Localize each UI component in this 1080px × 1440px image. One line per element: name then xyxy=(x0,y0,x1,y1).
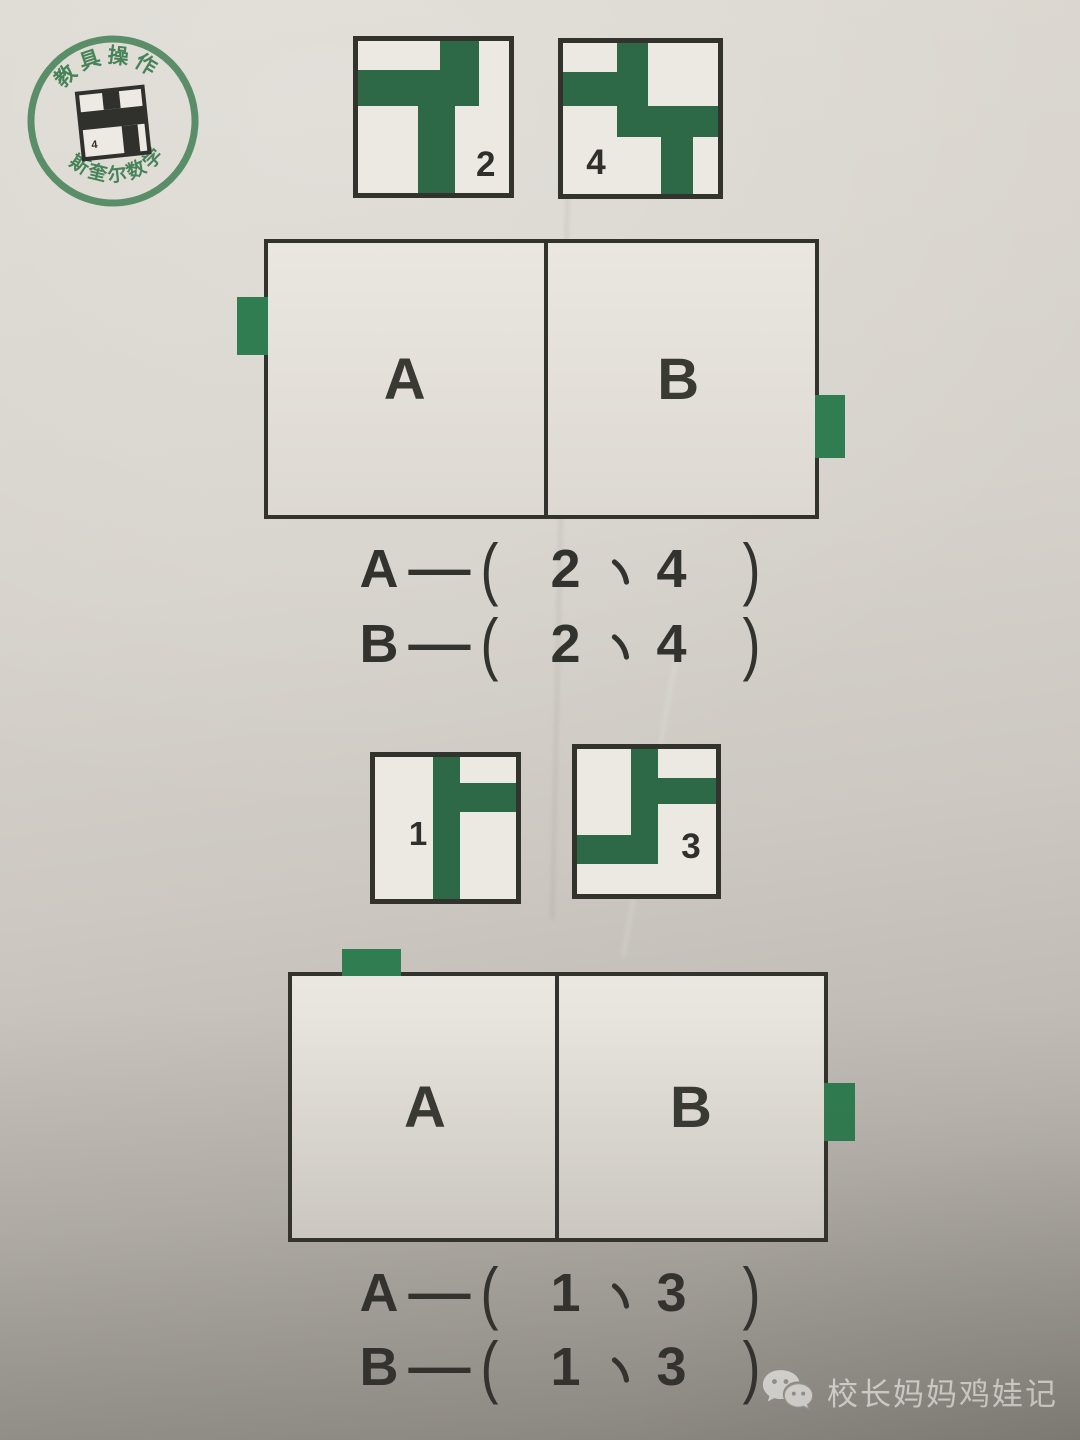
domino-board-1: A B xyxy=(264,239,819,519)
card-number: 4 xyxy=(586,145,605,180)
open-paren: ( xyxy=(480,1327,498,1406)
answer-label: B xyxy=(359,613,398,675)
answer-dash: — xyxy=(408,613,470,675)
wechat-icon xyxy=(759,1368,815,1414)
answer-label: A xyxy=(359,1262,398,1324)
green-pattern-rect xyxy=(648,106,718,136)
green-pattern-rect xyxy=(358,70,440,106)
close-paren: ) xyxy=(743,1327,761,1406)
green-tab-left xyxy=(237,297,268,354)
card-number: 1 xyxy=(409,817,427,850)
answer-dash: — xyxy=(408,1336,470,1398)
green-pattern-rect xyxy=(433,757,460,899)
domino-cell-b: B xyxy=(542,243,816,515)
green-pattern-rect xyxy=(418,106,454,193)
ideographic-comma-icon xyxy=(611,1357,631,1383)
green-tab-right xyxy=(824,1083,855,1141)
answer-line-a1: A — ( 2 4 ) xyxy=(359,538,760,600)
answer-number-1: 2 xyxy=(550,538,580,600)
answer-number-2: 3 xyxy=(657,1336,687,1398)
green-pattern-rect xyxy=(658,778,716,804)
answer-line-a2: A — ( 1 3 ) xyxy=(359,1262,760,1324)
watermark-text: 校长妈妈鸡娃记 xyxy=(827,1369,1058,1414)
answer-number-1: 1 xyxy=(550,1262,580,1324)
answer-line-b2: B — ( 1 3 ) xyxy=(359,1336,760,1398)
close-paren: ) xyxy=(743,1253,761,1332)
stamp-seal: 教具操作 斯奎尔数学 4 xyxy=(13,21,213,221)
domino-cell-a: A xyxy=(268,243,542,515)
close-paren: ) xyxy=(743,529,761,608)
watermark: 校长妈妈鸡娃记 xyxy=(759,1368,1058,1414)
open-paren: ( xyxy=(480,529,498,608)
answer-label: B xyxy=(359,1336,398,1398)
answer-label: A xyxy=(359,538,398,600)
green-pattern-rect xyxy=(440,41,479,106)
answer-line-b1: B — ( 2 4 ) xyxy=(359,613,760,675)
open-paren: ( xyxy=(480,1253,498,1332)
domino-board-2: A B xyxy=(288,972,828,1242)
green-pattern-rect xyxy=(661,137,694,194)
pattern-card-1: 1 xyxy=(370,752,521,904)
pattern-card-3-shape xyxy=(577,749,716,894)
answer-number-2: 4 xyxy=(657,538,687,600)
stamp-center-logo: 4 xyxy=(77,87,150,160)
answer-number-1: 2 xyxy=(550,613,580,675)
close-paren: ) xyxy=(743,604,761,683)
green-pattern-rect xyxy=(563,72,617,107)
green-pattern-rect xyxy=(577,835,631,864)
green-pattern-rect xyxy=(631,749,657,864)
answer-number-2: 3 xyxy=(657,1262,687,1324)
pattern-card-1-shape xyxy=(375,757,516,899)
cell-label-b: B xyxy=(670,1074,712,1141)
card-number: 2 xyxy=(476,147,495,182)
pattern-card-4: 4 xyxy=(558,38,723,199)
green-tab-top xyxy=(342,949,401,976)
pattern-card-3: 3 xyxy=(572,744,721,899)
cell-label-a: A xyxy=(404,1074,446,1141)
worksheet-photo: 教具操作 斯奎尔数学 4 2 4 A B A — xyxy=(0,0,1080,1440)
cell-label-a: A xyxy=(384,346,426,413)
domino-cell-b: B xyxy=(558,976,824,1238)
open-paren: ( xyxy=(480,604,498,683)
answer-dash: — xyxy=(408,538,470,600)
answer-number-2: 4 xyxy=(657,613,687,675)
green-tab-right xyxy=(815,395,845,458)
cell-label-b: B xyxy=(657,346,699,413)
ideographic-comma-icon xyxy=(611,634,631,660)
green-pattern-rect xyxy=(617,43,648,137)
answer-number-1: 1 xyxy=(550,1336,580,1398)
pattern-card-2: 2 xyxy=(353,36,514,198)
card-number: 3 xyxy=(681,829,700,864)
domino-cell-a: A xyxy=(292,976,558,1238)
ideographic-comma-icon xyxy=(611,559,631,585)
ideographic-comma-icon xyxy=(611,1283,631,1309)
answer-dash: — xyxy=(408,1262,470,1324)
green-pattern-rect xyxy=(460,783,516,813)
